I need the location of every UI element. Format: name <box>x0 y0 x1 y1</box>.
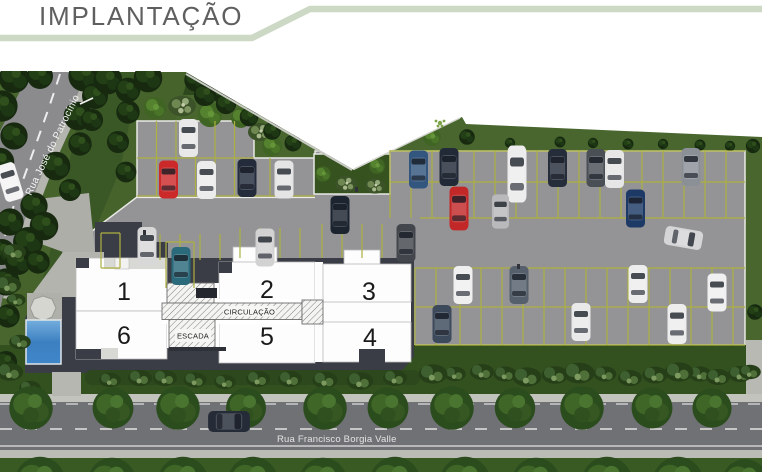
svg-text:IMPLANTAÇÃO: IMPLANTAÇÃO <box>39 1 243 31</box>
svg-text:4: 4 <box>363 324 377 352</box>
svg-text:Rua Francisco Borgia Valle: Rua Francisco Borgia Valle <box>277 434 397 445</box>
svg-text:ESCADA: ESCADA <box>177 332 209 341</box>
svg-text:CIRCULAÇÃO: CIRCULAÇÃO <box>224 308 275 317</box>
svg-text:1: 1 <box>117 278 131 306</box>
svg-text:6: 6 <box>117 322 131 350</box>
svg-text:3: 3 <box>362 278 376 306</box>
svg-text:5: 5 <box>260 323 274 351</box>
